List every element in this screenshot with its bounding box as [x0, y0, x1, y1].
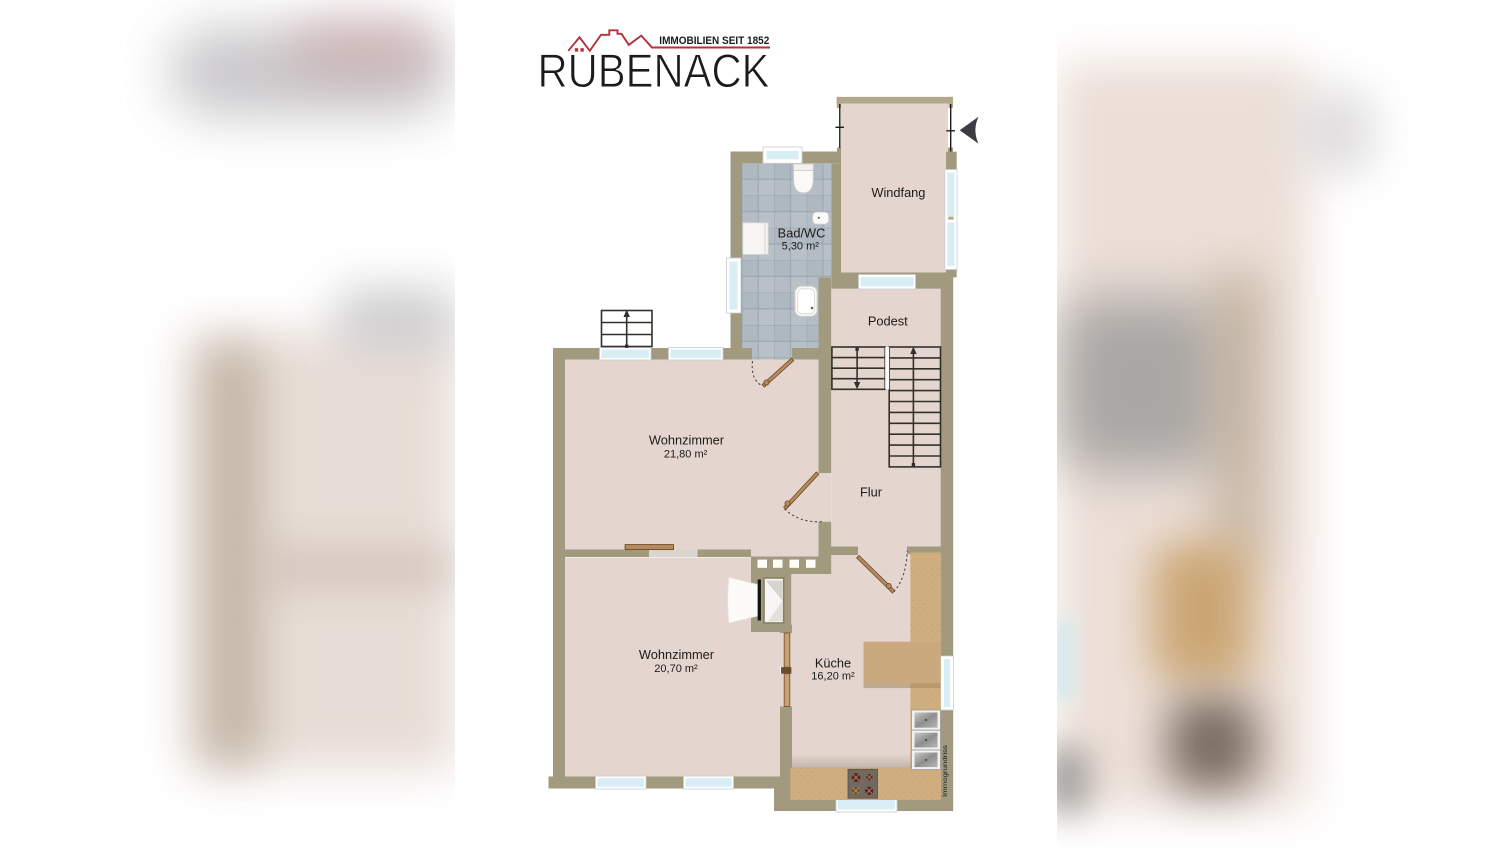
svg-text:5,30 m²: 5,30 m² — [782, 241, 820, 253]
svg-text:Flur: Flur — [860, 485, 883, 500]
svg-text:21,80 m²: 21,80 m² — [664, 449, 708, 461]
svg-text:RUBENACK: RUBENACK — [538, 45, 770, 98]
svg-text:Podest: Podest — [868, 314, 908, 329]
svg-text:Wohnzimmer: Wohnzimmer — [649, 433, 725, 448]
svg-text:Wohnzimmer: Wohnzimmer — [639, 647, 715, 662]
svg-text:IMMOBILIEN SEIT 1852: IMMOBILIEN SEIT 1852 — [659, 35, 769, 47]
svg-text:Windfang: Windfang — [871, 185, 925, 200]
svg-text:16,20 m²: 16,20 m² — [811, 671, 855, 683]
svg-text:Küche: Küche — [815, 656, 851, 671]
svg-text:Bad/WC: Bad/WC — [778, 226, 826, 241]
svg-text:20,70 m²: 20,70 m² — [654, 663, 698, 675]
svg-text:Immogrundriss: Immogrundriss — [942, 745, 949, 797]
